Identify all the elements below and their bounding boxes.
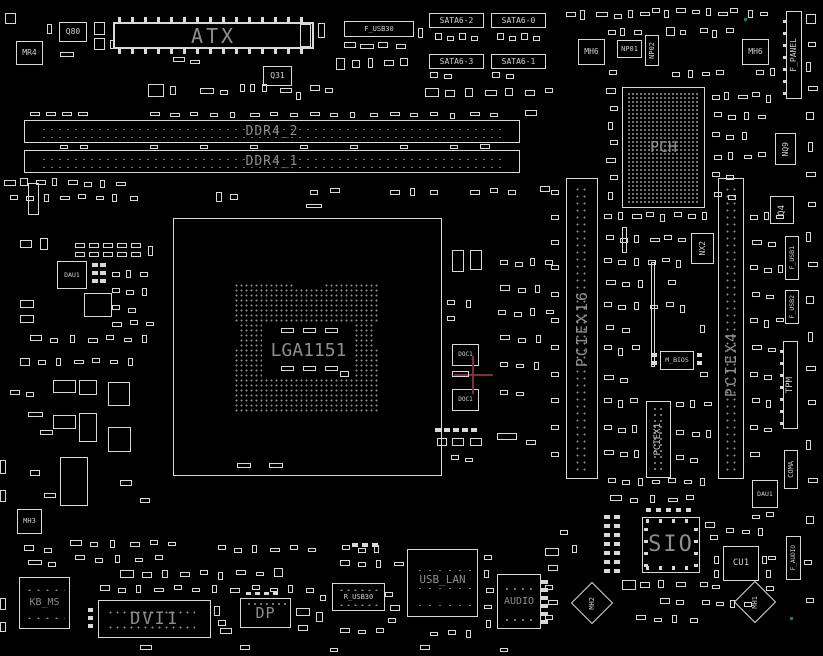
passive-component — [530, 258, 535, 266]
passive-component — [92, 358, 100, 363]
passive-component — [60, 457, 88, 506]
passive-component — [180, 572, 190, 577]
f-usb2-label: F_USB2 — [785, 290, 799, 324]
passive-component — [806, 172, 816, 177]
passive-component — [706, 430, 711, 438]
passive-component — [712, 30, 717, 38]
passive-component — [545, 88, 553, 93]
passive-component — [688, 70, 693, 78]
passive-component — [230, 194, 238, 200]
passive-component — [103, 243, 113, 248]
passive-component — [220, 628, 232, 634]
passive-component — [128, 358, 133, 366]
passive-component — [533, 36, 540, 41]
passive-component — [298, 625, 308, 631]
passive-component — [541, 588, 548, 592]
passive-component — [112, 305, 120, 310]
passive-component — [40, 238, 48, 250]
passive-component — [692, 10, 700, 14]
passive-component — [606, 325, 614, 330]
mh3-label: MH3 — [17, 509, 42, 534]
passive-component — [712, 95, 720, 100]
passive-component — [352, 60, 360, 68]
passive-component — [580, 10, 585, 20]
passive-component — [632, 425, 637, 433]
passive-component — [551, 265, 559, 270]
passive-component — [608, 192, 613, 200]
passive-component — [724, 92, 729, 100]
passive-component — [112, 322, 122, 327]
passive-component — [318, 23, 325, 38]
passive-component — [742, 530, 750, 534]
passive-component — [214, 606, 220, 616]
passive-component — [714, 155, 722, 160]
passive-component — [420, 645, 430, 650]
passive-component — [453, 428, 459, 432]
passive-component — [508, 190, 516, 195]
passive-component — [692, 432, 700, 437]
passive-component — [74, 360, 84, 364]
passive-component — [768, 556, 776, 560]
lga1151-label: LGA1151 — [262, 322, 355, 379]
passive-component — [430, 72, 438, 78]
passive-component — [88, 338, 98, 343]
passive-component — [0, 460, 6, 474]
dp-label: DP — [240, 598, 291, 628]
passive-component — [28, 412, 43, 417]
passive-component — [705, 522, 715, 528]
passive-component — [80, 145, 88, 149]
q4-label: Q4 — [770, 196, 794, 224]
passive-component — [730, 8, 738, 13]
passive-component — [192, 588, 200, 592]
passive-component — [640, 582, 650, 588]
passive-component — [634, 302, 639, 310]
passive-component — [130, 542, 140, 547]
q80-label: Q80 — [59, 22, 87, 42]
passive-component — [50, 338, 58, 343]
passive-component — [604, 345, 612, 350]
passive-component — [756, 70, 764, 75]
passive-component — [716, 70, 724, 75]
passive-component — [246, 592, 251, 595]
m-bios-label: M_BIOS — [660, 351, 694, 370]
passive-component — [30, 112, 40, 116]
passive-component — [360, 44, 374, 49]
passive-component — [766, 570, 771, 578]
passive-component — [541, 596, 548, 600]
passive-component — [500, 260, 508, 265]
passive-component — [290, 113, 298, 117]
passive-component — [726, 528, 734, 533]
passive-component — [518, 288, 526, 293]
passive-component — [676, 600, 684, 605]
passive-component — [106, 335, 114, 340]
passive-component — [526, 440, 536, 445]
passive-component — [310, 112, 320, 116]
passive-component — [614, 560, 620, 564]
passive-component — [764, 375, 772, 380]
passive-component — [94, 22, 105, 35]
passive-component — [4, 180, 16, 186]
passive-component — [545, 548, 559, 556]
passive-component — [10, 390, 20, 395]
passive-component — [115, 555, 120, 563]
passive-component — [764, 212, 769, 220]
passive-component — [666, 508, 671, 512]
passive-component — [236, 570, 246, 575]
passive-component — [465, 458, 473, 462]
passive-component — [100, 279, 106, 283]
mr4-label: MR4 — [16, 41, 43, 65]
passive-component — [614, 14, 622, 19]
passive-component — [551, 425, 559, 430]
passive-component — [606, 88, 616, 94]
passive-component — [514, 312, 522, 317]
passive-component — [390, 605, 400, 611]
passive-component — [70, 335, 75, 343]
passive-component — [668, 498, 678, 502]
passive-component — [485, 90, 497, 96]
passive-component — [89, 243, 99, 248]
passive-component — [704, 402, 712, 406]
passive-component — [516, 364, 524, 368]
pciex4-label: PCIEX4 — [718, 250, 744, 479]
passive-component — [697, 353, 702, 357]
passive-component — [30, 470, 40, 476]
passive-component — [808, 142, 813, 152]
passive-component — [808, 262, 818, 267]
passive-component — [288, 585, 293, 593]
passive-component — [296, 92, 301, 100]
passive-component — [622, 580, 636, 590]
passive-component — [541, 620, 548, 624]
passive-component — [447, 36, 454, 41]
passive-component — [75, 252, 85, 257]
passive-component — [116, 182, 126, 186]
passive-component — [216, 192, 222, 202]
passive-component — [714, 556, 719, 564]
passive-component — [79, 413, 97, 442]
passive-component — [509, 36, 516, 41]
passive-component — [89, 252, 99, 257]
passive-component — [750, 318, 758, 323]
passive-component — [690, 458, 698, 463]
passive-component — [470, 190, 480, 195]
passive-component — [806, 440, 811, 450]
passive-component — [492, 72, 500, 78]
passive-component — [566, 12, 576, 17]
passive-component — [608, 478, 616, 483]
passive-component — [604, 569, 610, 573]
passive-component — [750, 215, 758, 220]
passive-component — [70, 540, 82, 546]
sio-label: SIO — [642, 517, 700, 573]
passive-component — [350, 145, 358, 149]
passive-component — [630, 398, 638, 403]
passive-component — [484, 605, 492, 609]
passive-component — [60, 196, 70, 200]
passive-component — [400, 145, 408, 149]
passive-component — [768, 348, 776, 352]
passive-component — [604, 375, 614, 380]
passive-component — [515, 262, 523, 267]
passive-component — [618, 428, 626, 433]
passive-component — [450, 145, 458, 149]
passive-component — [430, 190, 438, 195]
passive-component — [53, 415, 76, 429]
passive-component — [497, 433, 517, 440]
passive-component — [92, 279, 98, 283]
passive-component — [126, 290, 134, 295]
passive-component — [84, 293, 112, 317]
passive-component — [52, 178, 57, 186]
passive-component — [384, 60, 394, 66]
passive-component — [376, 560, 381, 568]
passive-component — [750, 425, 758, 430]
passive-component — [618, 305, 626, 310]
passive-component — [452, 371, 469, 377]
passive-component — [702, 600, 710, 605]
passive-component — [808, 202, 816, 207]
passive-component — [471, 36, 478, 41]
passive-component — [10, 195, 18, 200]
passive-component — [500, 362, 508, 367]
passive-component — [700, 325, 705, 333]
passive-component — [804, 560, 812, 565]
passive-component — [155, 555, 163, 560]
passive-component — [40, 430, 53, 435]
passive-component — [610, 140, 618, 145]
passive-component — [108, 427, 131, 452]
passive-component — [521, 33, 528, 40]
passive-component — [362, 543, 368, 547]
passive-component — [46, 112, 56, 116]
passive-component — [651, 262, 655, 367]
doc1-upper-label: DOC1 — [452, 344, 479, 366]
lga1151-notch-right — [374, 324, 384, 348]
passive-component — [750, 372, 758, 377]
passive-component — [308, 548, 316, 552]
passive-component — [396, 44, 406, 49]
f-audio-label: F_AUDIO — [786, 536, 801, 580]
marker-dot-teal — [744, 18, 747, 21]
passive-component — [110, 360, 118, 364]
passive-component — [148, 246, 153, 256]
passive-component — [124, 338, 132, 342]
passive-component — [210, 113, 218, 117]
tpm-label: TPM — [783, 341, 798, 429]
passive-component — [310, 85, 320, 91]
passive-component — [672, 72, 680, 77]
passive-component — [126, 270, 131, 278]
passive-component — [117, 243, 127, 248]
passive-component — [218, 620, 226, 626]
f-panel-label: F_PANEL — [786, 11, 802, 99]
passive-component — [444, 74, 452, 79]
passive-component — [541, 580, 548, 584]
passive-component — [596, 12, 608, 17]
passive-component — [660, 214, 665, 222]
mh6-right-label: MH6 — [742, 39, 769, 65]
passive-component — [676, 455, 684, 460]
passive-component — [618, 212, 623, 220]
passive-component — [506, 74, 514, 79]
passive-component — [726, 135, 734, 140]
passive-component — [652, 480, 660, 484]
passive-component — [620, 238, 628, 243]
passive-component — [372, 543, 378, 547]
passive-component — [700, 28, 708, 33]
passive-component — [310, 190, 318, 195]
passive-component — [306, 588, 314, 593]
passive-component — [640, 12, 650, 16]
audio-label: AUDIO — [497, 574, 541, 629]
passive-component — [690, 618, 698, 623]
passive-component — [352, 543, 358, 547]
passive-component — [60, 145, 68, 149]
passive-component — [135, 558, 143, 562]
passive-component — [664, 235, 672, 240]
passive-component — [604, 542, 610, 546]
pch-label: PCH — [622, 87, 705, 208]
passive-component — [806, 516, 814, 524]
dau1-right-label: DAU1 — [752, 480, 778, 508]
passive-component — [610, 106, 618, 111]
nx2-label: NX2 — [691, 233, 714, 264]
passive-component — [447, 300, 455, 305]
passive-component — [634, 450, 639, 458]
passive-component — [700, 372, 708, 377]
passive-component — [140, 498, 150, 503]
passive-component — [20, 240, 32, 248]
passive-component — [0, 490, 6, 502]
passive-component — [120, 570, 134, 578]
passive-component — [94, 38, 105, 50]
passive-component — [548, 600, 558, 605]
passive-component — [614, 515, 620, 519]
passive-component — [604, 450, 614, 455]
passive-component — [220, 90, 228, 95]
passive-component — [190, 60, 200, 64]
passive-component — [350, 112, 355, 118]
passive-component — [385, 592, 393, 597]
passive-component — [632, 214, 642, 219]
passive-component — [130, 196, 138, 201]
passive-component — [768, 242, 776, 247]
lga1151-notch-left — [230, 324, 240, 348]
passive-component — [752, 292, 760, 297]
passive-component — [712, 585, 720, 589]
passive-component — [410, 113, 418, 117]
passive-component — [240, 84, 245, 92]
passive-component — [264, 592, 269, 595]
passive-component — [548, 565, 558, 571]
passive-component — [484, 570, 489, 578]
passive-component — [551, 190, 559, 195]
passive-component — [451, 455, 459, 460]
passive-component — [551, 240, 559, 245]
usb-lan-label: USB_LAN — [407, 549, 478, 609]
passive-component — [230, 588, 240, 593]
passive-component — [806, 14, 816, 24]
passive-component — [540, 186, 550, 192]
passive-component — [535, 285, 540, 293]
passive-component — [376, 628, 384, 633]
passive-component — [320, 595, 326, 601]
passive-component — [148, 84, 164, 97]
passive-component — [154, 588, 164, 592]
pciex1-label: PCIEX1 — [646, 401, 671, 478]
passive-component — [20, 300, 34, 308]
passive-component — [430, 112, 438, 116]
passive-component — [632, 345, 640, 350]
passive-component — [273, 592, 278, 595]
passive-component — [541, 612, 548, 616]
passive-component — [618, 400, 623, 408]
passive-component — [100, 263, 106, 267]
dvi1-label: DVI1 — [98, 600, 211, 638]
passive-component — [630, 498, 638, 503]
passive-component — [465, 88, 473, 97]
passive-component — [604, 515, 610, 519]
passive-component — [462, 428, 468, 432]
passive-component — [212, 585, 217, 593]
passive-component — [762, 556, 767, 564]
passive-component — [5, 13, 16, 24]
passive-component — [714, 192, 722, 197]
passive-component — [358, 630, 366, 634]
passive-component — [706, 8, 711, 16]
passive-component — [340, 560, 350, 566]
passive-component — [560, 530, 568, 535]
passive-component — [608, 30, 616, 35]
passive-component — [500, 335, 510, 340]
passive-component — [448, 630, 456, 635]
passive-component — [606, 280, 616, 285]
passive-component — [604, 214, 612, 219]
passive-component — [237, 463, 251, 468]
passive-component — [541, 604, 548, 608]
passive-component — [534, 362, 539, 370]
passive-component — [604, 425, 612, 430]
passive-component — [525, 90, 535, 96]
passive-component — [551, 345, 559, 350]
passive-component — [459, 33, 466, 40]
passive-component — [445, 90, 455, 97]
passive-component — [103, 252, 113, 257]
passive-component — [95, 558, 103, 563]
passive-component — [636, 615, 646, 620]
passive-component — [142, 572, 152, 578]
passive-component — [358, 562, 366, 567]
sata6-2-label: SATA6-2 — [429, 13, 484, 28]
board-diagram: Q80MR4ATXQ31F_USB30SATA6-2SATA6-0SATA6-3… — [0, 0, 823, 656]
passive-component — [551, 318, 559, 323]
passive-component — [500, 648, 508, 652]
passive-component — [714, 570, 719, 578]
passive-component — [776, 318, 784, 322]
passive-component — [730, 600, 735, 608]
passive-component — [500, 390, 508, 395]
passive-component — [806, 296, 814, 304]
passive-component — [56, 358, 61, 366]
passive-component — [44, 194, 49, 202]
passive-component — [128, 308, 136, 313]
passive-component — [252, 585, 260, 590]
passive-component — [330, 648, 338, 652]
passive-component — [190, 112, 198, 116]
